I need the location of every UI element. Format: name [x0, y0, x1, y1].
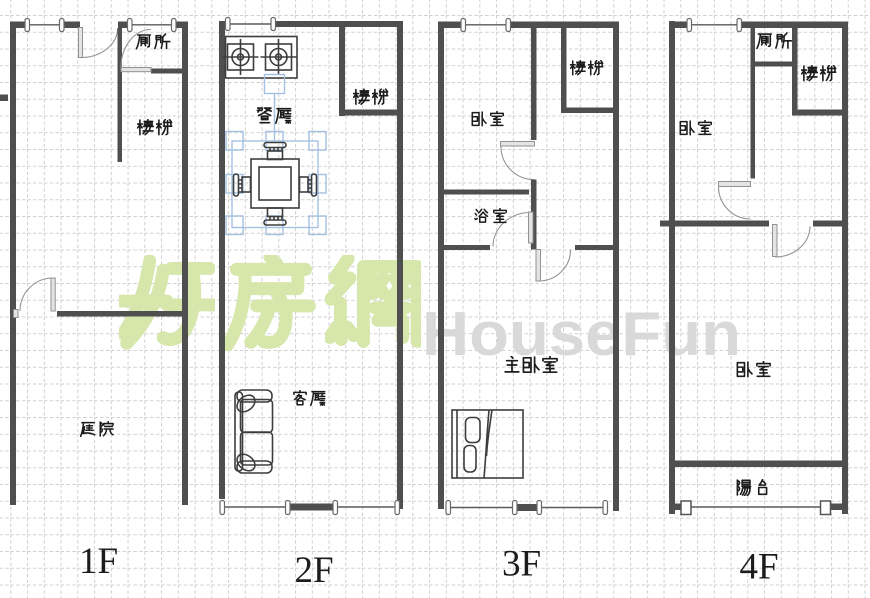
svg-text:2F: 2F: [294, 550, 333, 591]
svg-text:4F: 4F: [739, 547, 778, 588]
svg-text:HouseFun: HouseFun: [422, 300, 741, 369]
svg-text:1F: 1F: [79, 541, 118, 582]
svg-text:3F: 3F: [502, 544, 541, 585]
